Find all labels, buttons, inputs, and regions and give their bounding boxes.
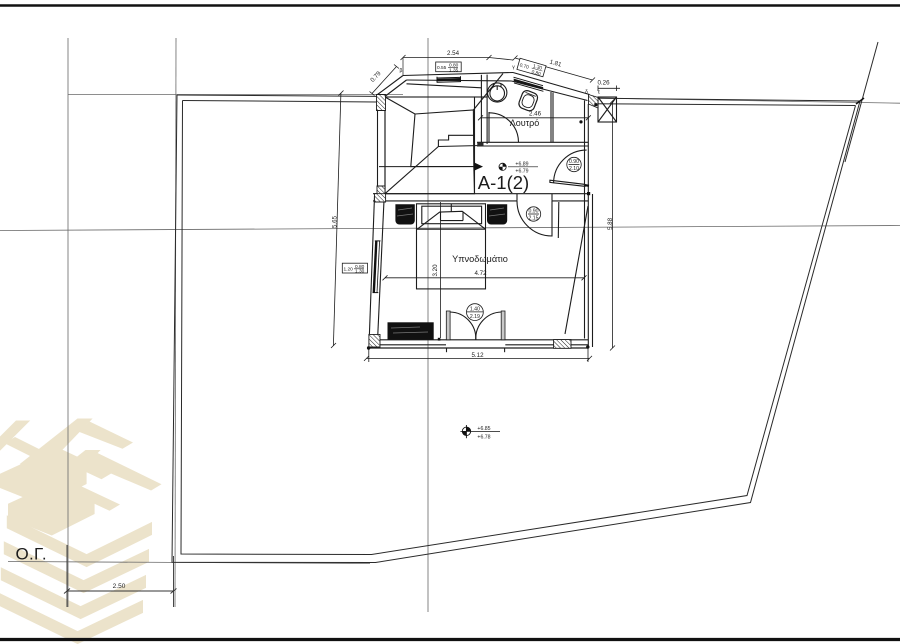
svg-text:5.88: 5.88: [607, 217, 614, 230]
svg-text:+6.85: +6.85: [477, 426, 490, 432]
svg-text:1.20: 1.20: [344, 267, 354, 273]
svg-text:0.90: 0.90: [569, 159, 579, 165]
svg-text:1.40: 1.40: [470, 306, 480, 312]
svg-text:Ο.Γ.: Ο.Γ.: [16, 545, 47, 564]
svg-text:2.19: 2.19: [470, 314, 480, 320]
svg-text:0.90: 0.90: [528, 209, 538, 215]
svg-text:+6.78: +6.78: [477, 434, 490, 440]
svg-text:3.20: 3.20: [432, 264, 439, 277]
svg-text:β: β: [400, 68, 403, 74]
svg-text:A-1(2): A-1(2): [478, 172, 529, 193]
svg-text:5.65: 5.65: [332, 215, 339, 228]
svg-text:1.30: 1.30: [355, 269, 365, 275]
svg-text:2.50: 2.50: [113, 583, 126, 590]
svg-text:1.35: 1.35: [449, 67, 459, 73]
svg-text:Λουτρό: Λουτρό: [510, 118, 540, 128]
svg-text:2.15: 2.15: [528, 216, 538, 222]
svg-text:2.10: 2.10: [569, 166, 579, 172]
svg-text:Υπνοδωμάτιο: Υπνοδωμάτιο: [452, 254, 508, 264]
svg-text:0.26: 0.26: [597, 80, 610, 87]
svg-text:2.46: 2.46: [529, 111, 542, 118]
svg-text:δ: δ: [585, 90, 588, 96]
svg-text:+6.89: +6.89: [515, 161, 528, 167]
svg-text:0.55: 0.55: [437, 65, 447, 71]
svg-text:4.72: 4.72: [474, 270, 487, 277]
svg-text:5.12: 5.12: [471, 352, 484, 359]
svg-text:2.54: 2.54: [447, 50, 460, 57]
